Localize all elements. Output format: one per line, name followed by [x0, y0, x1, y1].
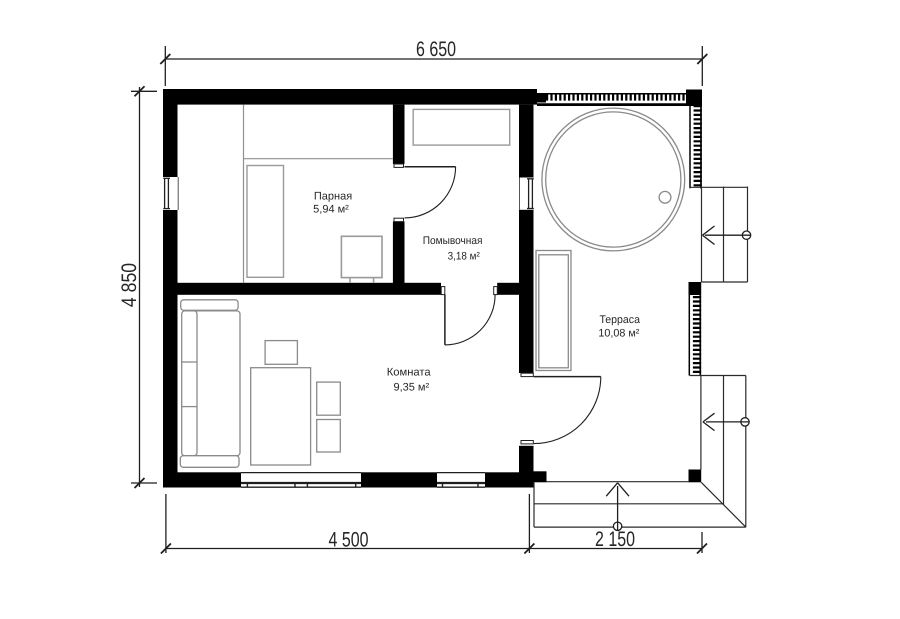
svg-text:5,94 м²: 5,94 м² — [313, 204, 349, 216]
svg-text:2 150: 2 150 — [595, 528, 635, 551]
svg-text:6 650: 6 650 — [416, 38, 456, 61]
svg-text:9,35 м²: 9,35 м² — [393, 382, 429, 394]
svg-text:4 850: 4 850 — [118, 263, 141, 307]
svg-text:10,08 м²: 10,08 м² — [598, 328, 639, 340]
svg-text:Терраса: Терраса — [599, 314, 640, 326]
svg-text:Комната: Комната — [387, 366, 432, 378]
svg-text:Помывочная: Помывочная — [423, 235, 483, 247]
svg-text:4 500: 4 500 — [329, 529, 369, 552]
svg-text:3,18 м²: 3,18 м² — [448, 250, 480, 262]
svg-text:Парная: Парная — [314, 191, 352, 203]
